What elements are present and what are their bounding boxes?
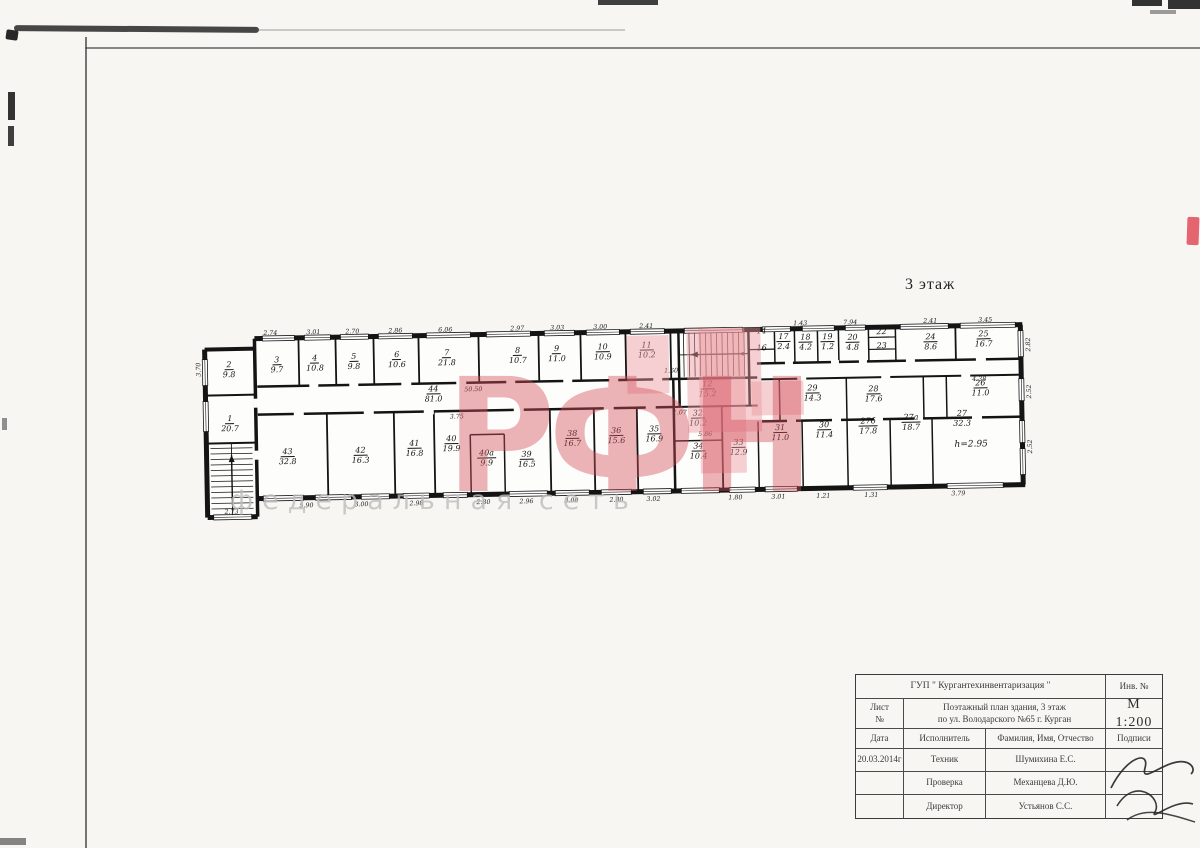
room-number: 6 bbox=[392, 350, 401, 360]
scanned-floor-plan-page: { "page": { "floor_label": "3 этаж", "wa… bbox=[0, 0, 1200, 848]
dimension-label: 2.41 bbox=[639, 323, 653, 330]
room-label: 2817.6 bbox=[864, 384, 882, 404]
dimension-label: 3.03 bbox=[550, 324, 564, 331]
dimension-label: 3.70 bbox=[195, 363, 202, 377]
room-label: 4116.8 bbox=[405, 439, 423, 459]
title-block-sheet-label: Лист № bbox=[856, 699, 904, 729]
room-label: 191.2 bbox=[820, 332, 835, 352]
dimension-label: 3.79 bbox=[951, 490, 965, 497]
room-label: 27б17.8 bbox=[858, 416, 877, 436]
room-number: 20 bbox=[845, 333, 859, 343]
room-number: 27б bbox=[858, 416, 877, 427]
row-role: Техник bbox=[904, 749, 986, 772]
row-name: Устьянов С.С. bbox=[986, 795, 1106, 818]
room-area: 11.4 bbox=[815, 430, 833, 440]
room-number: 27а bbox=[901, 412, 920, 423]
watermark-rfn: РФН bbox=[446, 362, 808, 512]
room-number: 27 bbox=[955, 409, 969, 419]
dimension-label: 3.45 bbox=[978, 317, 992, 324]
scan-edge-mark bbox=[1150, 10, 1176, 14]
room-number: 1 bbox=[225, 414, 234, 424]
dimension-label: 3.00 bbox=[593, 324, 607, 331]
row-date bbox=[856, 795, 904, 818]
drawing-frame-vertical-line bbox=[85, 37, 87, 848]
drawing-frame-horizontal-line bbox=[85, 47, 1200, 49]
dimension-label: 4.38 bbox=[972, 376, 986, 383]
scan-edge-mark bbox=[1132, 0, 1162, 6]
room-label: 22 bbox=[874, 327, 888, 336]
room-number: 23 bbox=[874, 341, 888, 350]
room-area: 20.7 bbox=[221, 424, 239, 434]
room-area: 17.6 bbox=[865, 394, 883, 404]
room-number: 29 bbox=[805, 383, 819, 393]
dimension-label: 2.82 bbox=[1025, 337, 1032, 351]
row-name: Шумихина Е.С. bbox=[986, 749, 1106, 772]
room-area: 32.3 bbox=[953, 419, 971, 429]
room-area: 9.8 bbox=[223, 370, 236, 379]
dimension-label: 1.43 bbox=[793, 320, 807, 327]
dimension-label: 2.52 bbox=[1027, 439, 1034, 453]
room-label: 2516.7 bbox=[974, 329, 992, 349]
title-block-organization: ГУП " Кургантехинвентаризация " bbox=[856, 675, 1106, 699]
scan-edge-mark bbox=[1168, 0, 1200, 9]
room-area: 10.8 bbox=[306, 364, 324, 374]
dimension-label: 2.86 bbox=[388, 327, 402, 334]
floor-title: 3 этаж bbox=[905, 276, 955, 294]
room-number: 43 bbox=[280, 447, 294, 457]
dimension-label: 6.06 bbox=[438, 327, 452, 334]
scan-edge-mark bbox=[598, 0, 658, 5]
room-area: 9.7 bbox=[271, 365, 284, 374]
row-date: 20.03.2014г bbox=[856, 749, 904, 772]
room-number: 41 bbox=[407, 439, 421, 449]
dimension-label: 2.52 bbox=[1026, 384, 1033, 398]
signatures bbox=[1105, 748, 1200, 828]
room-label: 204.8 bbox=[845, 333, 860, 353]
room-number: 2 bbox=[224, 360, 233, 370]
room-number: 4 bbox=[310, 353, 319, 363]
room-number: 30 bbox=[817, 420, 831, 430]
dimension-label: 2.74 bbox=[263, 330, 277, 337]
room-area: 16.3 bbox=[352, 456, 370, 466]
dimension-label: 3.01 bbox=[306, 329, 320, 336]
room-area: 18.7 bbox=[902, 423, 921, 433]
room-number: 25 bbox=[976, 329, 990, 339]
room-area: 9.8 bbox=[347, 362, 360, 371]
room-number: 18 bbox=[798, 332, 812, 342]
room-area: 81.0 bbox=[425, 394, 443, 404]
room-area: 10.6 bbox=[388, 360, 406, 370]
room-number: 17 bbox=[776, 332, 790, 342]
room-area: 17.8 bbox=[859, 426, 878, 436]
room-label: 3011.4 bbox=[815, 420, 833, 440]
room-label: 2732.3 bbox=[953, 409, 971, 429]
room-number: 44 bbox=[426, 384, 440, 394]
room-number: 42 bbox=[353, 446, 367, 456]
document-title-line2: по ул. Володарского №65 г. Курган bbox=[938, 714, 1071, 725]
room-label: 27а18.7 bbox=[901, 412, 920, 432]
row-role: Проверка bbox=[904, 772, 986, 795]
room-label: 29.8 bbox=[222, 360, 235, 380]
column-header-signature: Подписи bbox=[1106, 729, 1162, 749]
room-label: 39.7 bbox=[270, 355, 283, 375]
dimension-label: 1.21 bbox=[816, 493, 830, 500]
scan-smudge bbox=[255, 29, 625, 31]
room-area: 32.8 bbox=[279, 457, 297, 467]
room-label: 23 bbox=[874, 341, 888, 350]
ceiling-height-note: h=2.95 bbox=[954, 439, 988, 450]
room-area: 4.8 bbox=[846, 343, 860, 352]
room-area: 16.8 bbox=[406, 449, 424, 459]
title-block-document-title: Поэтажный план здания, 3 этаж по ул. Вол… bbox=[904, 699, 1106, 729]
dimension-label: 7.94 bbox=[843, 319, 857, 326]
column-header-executor: Исполнитель bbox=[904, 729, 986, 749]
room-number: 24 bbox=[923, 332, 937, 342]
scan-edge-mark bbox=[2, 418, 7, 430]
dimension-label: 2.70 bbox=[345, 328, 359, 335]
room-area: 11.0 bbox=[972, 388, 990, 398]
room-number: 19 bbox=[820, 332, 834, 342]
room-label: 248.6 bbox=[923, 332, 938, 352]
room-number: 22 bbox=[874, 327, 888, 336]
room-number: 3 bbox=[272, 355, 281, 365]
row-name: Механцева Д.Ю. bbox=[986, 772, 1106, 795]
scan-edge-mark bbox=[0, 838, 26, 845]
scan-edge-mark bbox=[8, 92, 15, 120]
row-date bbox=[856, 772, 904, 795]
room-label: 4216.3 bbox=[351, 446, 369, 466]
room-area: 1.2 bbox=[820, 342, 834, 351]
dimension-label: 2.97 bbox=[510, 325, 524, 332]
red-stamp-fragment bbox=[1187, 217, 1200, 245]
scan-edge-mark bbox=[8, 126, 14, 146]
room-label: 410.8 bbox=[306, 353, 324, 373]
room-label: 4332.8 bbox=[279, 447, 297, 467]
room-number: 28 bbox=[866, 384, 880, 394]
scan-edge-mark bbox=[5, 29, 18, 41]
room-label: 120.7 bbox=[221, 414, 239, 434]
dimension-label: 2.41 bbox=[923, 318, 937, 325]
room-label: 4481.0 bbox=[424, 384, 442, 404]
room-number: 5 bbox=[349, 352, 358, 362]
scan-smudge bbox=[14, 25, 259, 33]
column-header-date: Дата bbox=[856, 729, 904, 749]
room-label: 59.8 bbox=[347, 352, 360, 372]
room-area: 8.6 bbox=[924, 342, 938, 351]
document-title-line1: Поэтажный план здания, 3 этаж bbox=[943, 702, 1066, 713]
row-role: Директор bbox=[904, 795, 986, 818]
room-label: 610.6 bbox=[388, 350, 406, 370]
room-area: 16.7 bbox=[975, 339, 993, 349]
column-header-fullname: Фамилия, Имя, Отчество bbox=[986, 729, 1106, 749]
title-block-scale: М 1:200 bbox=[1106, 699, 1162, 729]
dimension-label: 1.31 bbox=[864, 492, 878, 499]
